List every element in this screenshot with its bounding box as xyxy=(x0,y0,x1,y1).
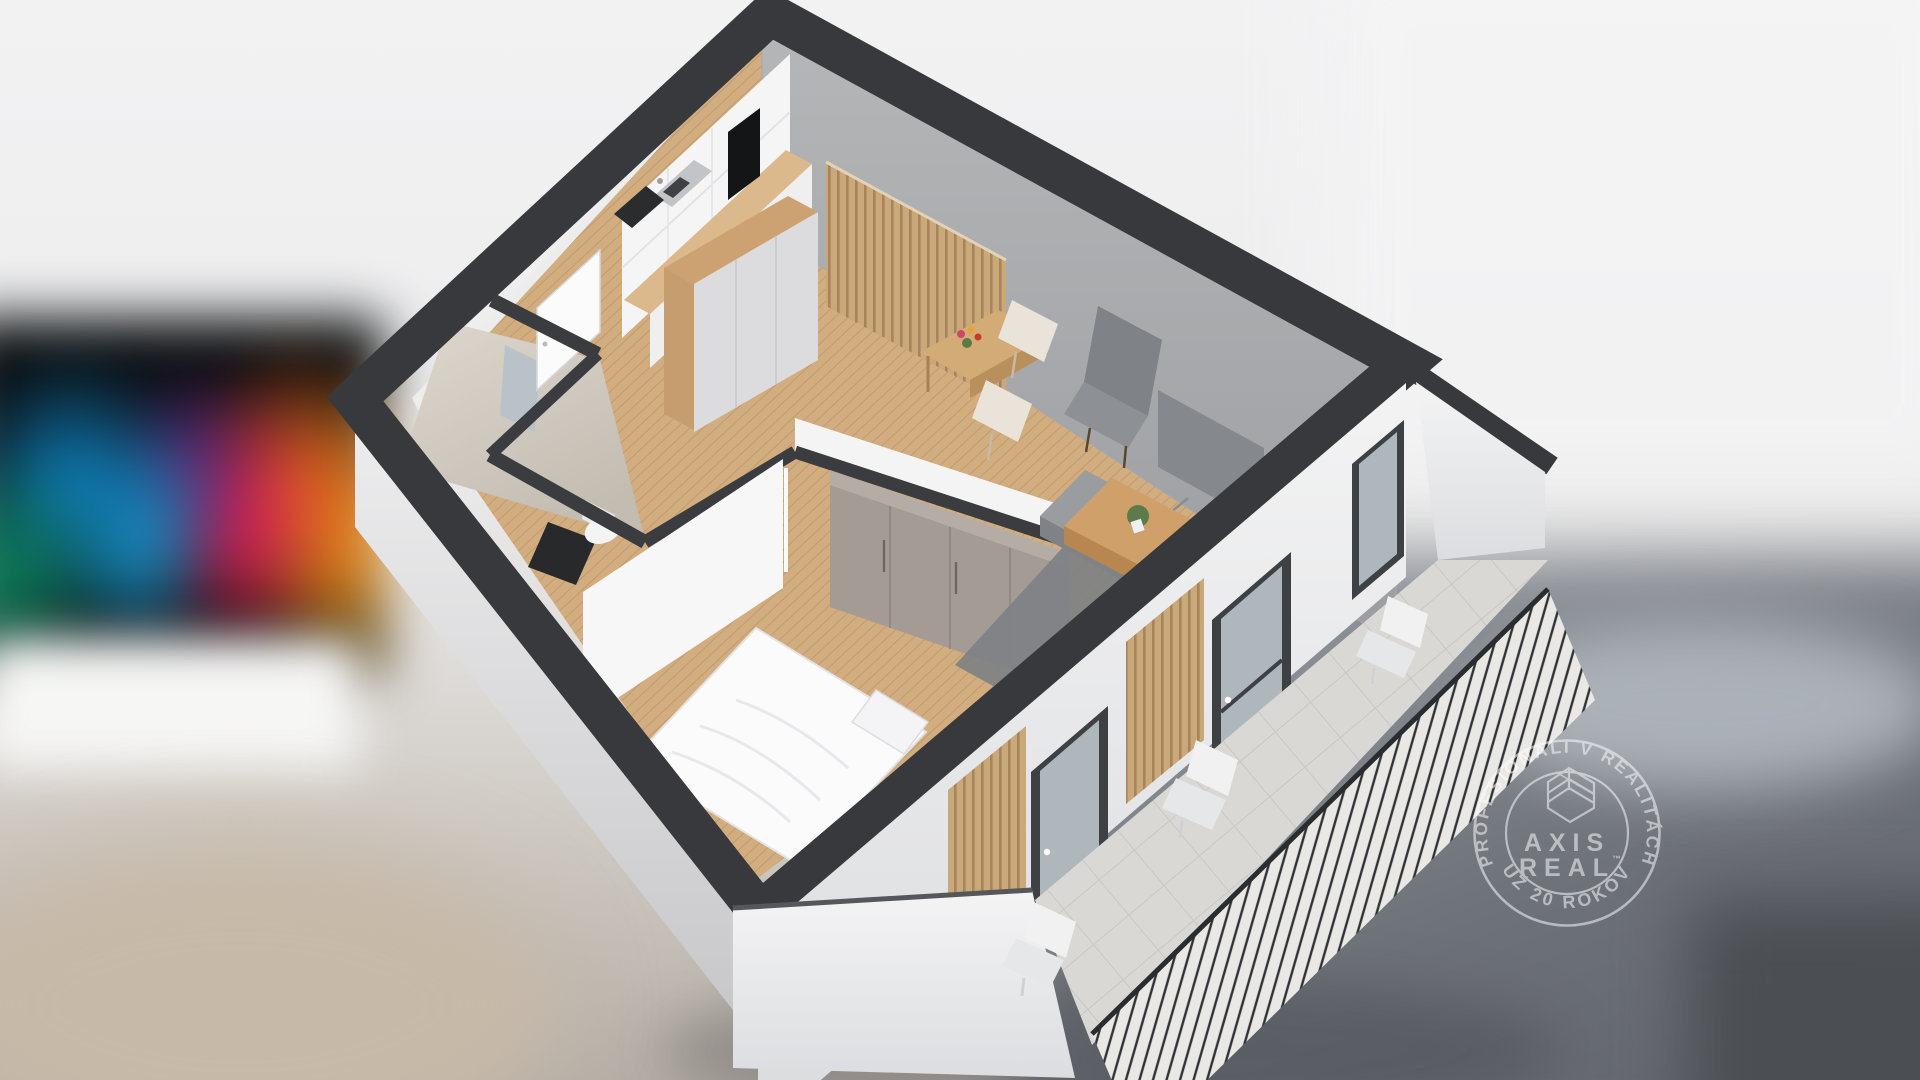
floorplan-render: PROFESIONÁLI V REALITÁCH UŽ 20 ROKOV AXI… xyxy=(0,0,1920,1080)
flower-bouquet xyxy=(968,327,975,334)
door-handle xyxy=(1225,697,1231,703)
watermark-brand-axis: AXIS xyxy=(1524,829,1610,857)
door-handle xyxy=(1044,849,1050,855)
hall-wardrobe-wood-side xyxy=(664,268,694,430)
flower-leaves xyxy=(962,338,972,348)
scene-root: PROFESIONÁLI V REALITÁCH UŽ 20 ROKOV AXI… xyxy=(0,0,1920,1080)
entry-door-handle xyxy=(543,342,548,347)
kitchen-faucet xyxy=(657,178,663,184)
flower-bouquet xyxy=(957,330,965,338)
flower-bouquet xyxy=(975,334,982,341)
watermark-brand-real: REAL xyxy=(1519,854,1615,882)
watermark-trademark: ™ xyxy=(1612,854,1621,864)
